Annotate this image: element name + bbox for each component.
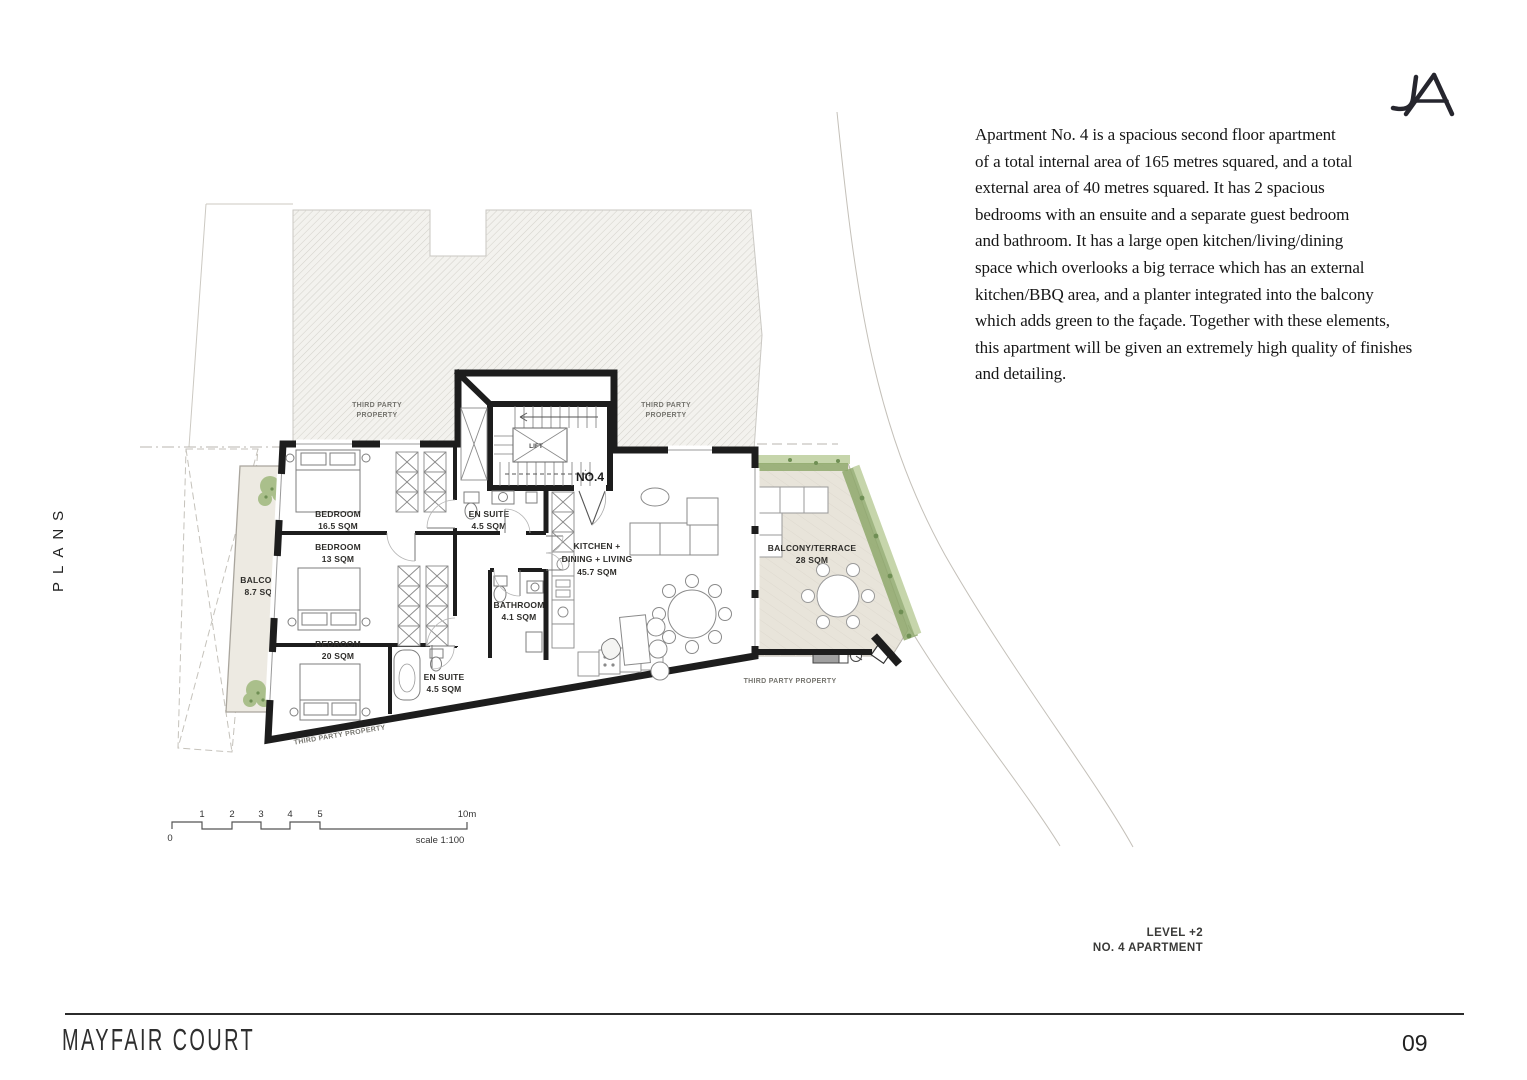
- scale-bar: 0 1 2 3 4 5 10m scale 1:100: [167, 809, 476, 846]
- kitchen-name2: DINING + LIVING: [562, 554, 633, 564]
- third-party-bottom: THIRD PARTY PROPERTY: [744, 678, 837, 685]
- bedroom2-name: BEDROOM: [315, 542, 361, 552]
- unit-number-label: NO.4: [576, 470, 604, 484]
- coffee-table: [641, 488, 669, 506]
- dining-table: [653, 575, 732, 654]
- footer-rule: [65, 1013, 1464, 1015]
- scale-tick-10m: 10m: [458, 809, 477, 820]
- scale-tick-5: 5: [317, 809, 322, 820]
- level-annotation: LEVEL +2 NO. 4 APARTMENT: [1093, 926, 1203, 956]
- ensuite2-name: EN SUITE: [424, 672, 465, 682]
- scale-tick-4: 4: [287, 809, 292, 820]
- scale-caption: scale 1:100: [416, 835, 465, 846]
- ensuite2-area: 4.5 SQM: [427, 684, 462, 694]
- project-title: MAYFAIR COURT: [62, 1024, 255, 1059]
- bedroom3-area: 20 SQM: [322, 651, 354, 661]
- scale-tick-1: 1: [199, 809, 204, 820]
- scale-tick-0: 0: [167, 833, 172, 844]
- third-party-label-right: THIRD PARTY: [641, 402, 691, 409]
- planter-band-top-light: [756, 455, 850, 464]
- third-party-label-left: THIRD PARTY: [352, 402, 402, 409]
- bathroom-area: 4.1 SQM: [502, 612, 537, 622]
- ensuite1-area: 4.5 SQM: [472, 521, 507, 531]
- ensuite1-name: EN SUITE: [469, 509, 510, 519]
- terrace: BALCONY/TERRACE 28 SQM: [755, 455, 918, 664]
- brochure-page: PLANS JA Apartment No. 4 is a spacious s…: [0, 0, 1527, 1080]
- floor-plan: THIRD PARTY PROPERTY THIRD PARTY PROPERT…: [0, 0, 1527, 1080]
- bathroom-name: BATHROOM: [493, 600, 544, 610]
- page-number: 09: [1402, 1030, 1428, 1057]
- third-party-label-right2: PROPERTY: [646, 412, 687, 419]
- scale-tick-2: 2: [229, 809, 234, 820]
- bedroom1-name: BEDROOM: [315, 509, 361, 519]
- bedroom3-name: BEDROOM: [315, 639, 361, 649]
- kitchen-area: 45.7 SQM: [577, 567, 617, 577]
- lift-label: LIFT: [529, 443, 543, 450]
- scale-tick-3: 3: [258, 809, 263, 820]
- planter-band-top-dark: [756, 463, 848, 471]
- apartment-label: NO. 4 APARTMENT: [1093, 941, 1203, 956]
- road-curves: [837, 112, 1133, 847]
- terrace-name: BALCONY/TERRACE: [768, 543, 857, 553]
- bedroom1-area: 16.5 SQM: [318, 521, 358, 531]
- level-label: LEVEL +2: [1093, 926, 1203, 941]
- bedroom2-area: 13 SQM: [322, 554, 354, 564]
- kitchen-name1: KITCHEN +: [574, 541, 621, 551]
- third-party-label-left2: PROPERTY: [357, 412, 398, 419]
- terrace-area: 28 SQM: [796, 555, 828, 565]
